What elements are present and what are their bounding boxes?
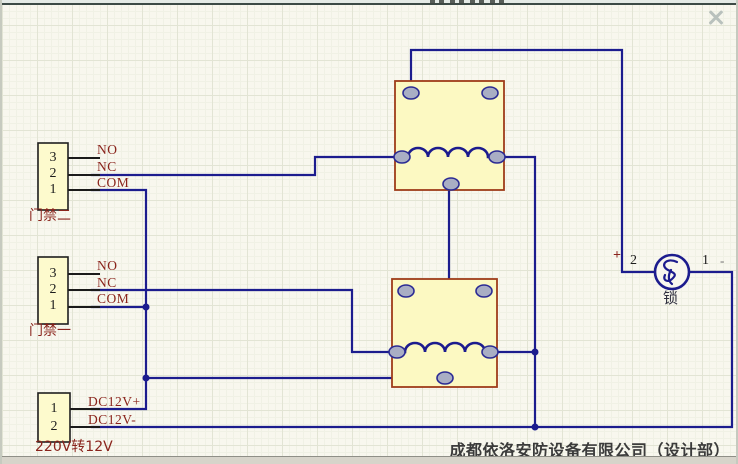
relay-top-pad-topright bbox=[482, 87, 498, 99]
door1-signal-no: NO bbox=[97, 259, 118, 274]
door1-signal-com: COM bbox=[97, 292, 129, 307]
psu-pin1-number: 1 bbox=[46, 401, 62, 416]
lock-terminal-1: 1 bbox=[702, 253, 709, 268]
lock-terminal-2: 2 bbox=[630, 253, 637, 268]
junction-dot bbox=[532, 349, 539, 356]
relay-bottom-pad-coil-left bbox=[389, 346, 405, 358]
relay-top-pad-topleft bbox=[403, 87, 419, 99]
relay-top-pad-coil-right bbox=[489, 151, 505, 163]
psu-signal-dc12v-minus: DC12V- bbox=[88, 413, 136, 428]
wire-relay-top-coil-to-bus bbox=[504, 157, 535, 427]
lock-plus-sign: + bbox=[613, 248, 621, 263]
window-titlebar-cropped bbox=[2, 0, 736, 5]
junction-dot bbox=[532, 424, 539, 431]
schematic-viewer-window: 3 2 1 NO NC COM 门禁二 3 2 1 NO NC COM 门禁一 … bbox=[0, 0, 738, 464]
wire-relay-top-bottom-pad-to-relay-bottom bbox=[414, 186, 449, 291]
door1-pin2-number: 2 bbox=[45, 282, 61, 297]
window-bottom-frame bbox=[2, 456, 736, 464]
lock-minus-sign: - bbox=[720, 254, 724, 268]
psu-label: 220V转12V bbox=[35, 440, 113, 455]
psu-pin2-number: 2 bbox=[46, 419, 62, 434]
wire-door1-nc-to-relay-bottom-coil bbox=[92, 290, 390, 352]
door2-pin1-number: 1 bbox=[45, 182, 61, 197]
door2-signal-com: COM bbox=[97, 176, 129, 191]
relay-top-pad-bottom bbox=[443, 178, 459, 190]
close-icon[interactable] bbox=[707, 9, 725, 27]
door2-signal-no: NO bbox=[97, 143, 118, 158]
relay-top-pad-coil-left bbox=[394, 151, 410, 163]
door2-pin3-number: 3 bbox=[45, 150, 61, 165]
psu-signal-dc12v-plus: DC12V+ bbox=[88, 395, 141, 410]
relay-bottom-pad-coil-right bbox=[482, 346, 498, 358]
door1-label: 门禁一 bbox=[29, 324, 71, 339]
relay-bottom-pad-topright bbox=[476, 285, 492, 297]
door1-pin3-number: 3 bbox=[45, 266, 61, 281]
door2-pin2-number: 2 bbox=[45, 166, 61, 181]
door2-label: 门禁二 bbox=[29, 209, 71, 224]
door1-signal-nc: NC bbox=[97, 276, 117, 291]
window-title-text-cropped bbox=[430, 0, 508, 4]
door1-pin1-number: 1 bbox=[45, 298, 61, 313]
junction-dot bbox=[143, 304, 150, 311]
wire-door2-nc-to-relay-top-coil bbox=[92, 157, 399, 175]
junction-dot bbox=[143, 375, 150, 382]
door2-signal-nc: NC bbox=[97, 160, 117, 175]
relay-bottom-pad-topleft bbox=[398, 285, 414, 297]
relay-bottom-pad-bottom bbox=[437, 372, 453, 384]
lock-label: 锁 bbox=[663, 290, 678, 307]
